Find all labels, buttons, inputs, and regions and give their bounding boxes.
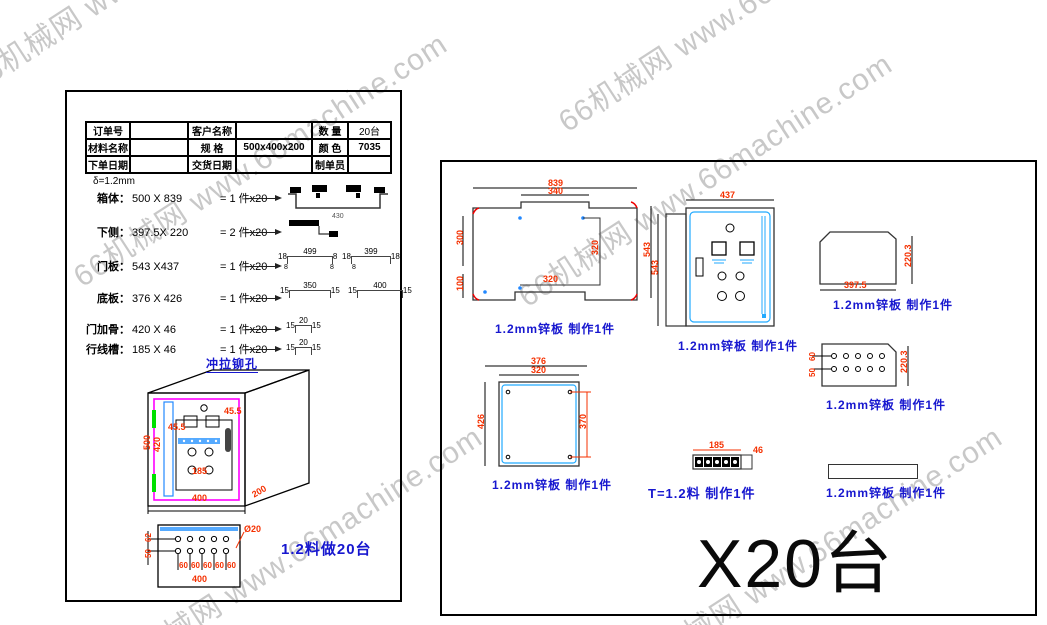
part-size: 543 X437 [132,261,220,273]
dim: 15 [348,287,357,295]
dim: 320 [531,365,546,375]
dim: 220.3 [899,350,909,373]
part-c-drawing: 397.5 220.3 [812,226,927,298]
dim: 50 [808,368,817,377]
dim: 543 [650,260,660,275]
spec-value: 500x400x200 [236,139,312,156]
dim: 15 [312,322,321,330]
dim: 46 [753,445,763,455]
arrow-icon [246,298,276,299]
part-a-label: 1.2mm锌板 制作1件 [495,320,615,337]
material-label: 材料名称 [86,139,130,156]
qty-value: 20台 [348,122,391,139]
dim: 60 [215,561,224,570]
dim: 8 [284,264,288,271]
arrow-icon [246,198,276,199]
qty-label: 数 量 [312,122,348,139]
total-quantity-text: X20台 [697,508,894,607]
dim: 185 [192,466,207,476]
dim: 200 [250,483,268,499]
order-no-value [130,122,188,139]
part-size: 420 X 46 [132,324,220,336]
dim: 400 [192,493,207,503]
dim: 320 [543,274,558,284]
dim: 185 [709,440,724,450]
part-e-label: 1.2mm锌板 制作1件 [492,476,612,493]
part-f-drawing: 185 46 [685,442,765,476]
dim: Ø20 [244,524,261,534]
dim: 370 [578,414,588,429]
clerk-label: 制单员 [312,156,348,173]
part-c-label: 1.2mm锌板 制作1件 [833,296,953,313]
dim: 18 [391,253,400,261]
dim: 15 [331,287,340,295]
customer-value [236,122,312,139]
dim: 60 [179,561,188,570]
door-bracket-sketch: 18 499 8 [278,253,337,264]
side-profile-sketch [285,216,355,244]
arrow-icon [246,266,276,267]
order-date-value [130,156,188,173]
dim: 60 [191,561,200,570]
dim: 60 [227,561,236,570]
parts-list-row: 底板：376 X 426= 1 件x20 [70,290,267,306]
part-name: 门加骨： [70,321,130,337]
part-d-label: 1.2mm锌板 制作1件 [826,396,946,413]
customer-label: 客户名称 [188,122,236,139]
order-date-label: 下单日期 [86,156,130,173]
dim: 543 [642,242,652,257]
spec-label: 规 格 [188,139,236,156]
dim: 8 [333,253,337,261]
base-bracket-sketch: 15 400 15 [348,287,412,298]
dim: 500 [142,435,152,450]
dim: 340 [548,186,563,196]
dim: 399 [364,247,377,256]
arrow-icon [246,349,276,350]
dim: 62 [144,533,153,542]
dim: 20 [299,316,308,325]
dim: 300 [455,230,465,245]
order-no-label: 订单号 [86,122,130,139]
dim: 426 [476,414,486,429]
order-info-table: 订单号 客户名称 数 量 20台 材料名称 规 格 500x400x200 颜 … [85,121,392,174]
dim: 437 [720,190,735,200]
material-value [130,139,188,156]
dim: 8 [330,264,334,271]
color-label: 颜 色 [312,139,348,156]
dim: 15 [312,344,321,352]
stiffener-bracket-sketch: 15 20 15 [286,322,321,333]
dim: 18 [342,253,351,261]
cabinet-drawing: 45.5 45.5 185 400 500 420 200 [140,362,330,514]
thickness-note: δ=1.2mm [93,176,135,187]
watermark: 66机械网 www.66machine.com [0,0,349,100]
dim: 499 [303,247,316,256]
duct-bracket-sketch: 15 20 15 [286,344,321,355]
part-a-drawing: 839 340 300 100 320 320 543 [455,178,655,323]
base-bracket-sketch: 15 350 15 [280,287,340,298]
part-b-drawing: 437 543 [652,196,782,336]
dim: 15 [403,287,412,295]
dim: 350 [303,281,316,290]
part-d-drawing: 60 50 220.3 [810,336,925,396]
dim: 60 [203,561,212,570]
dim: 320 [590,240,600,255]
part-b-label: 1.2mm锌板 制作1件 [678,337,798,354]
make-note: 1.2料做20台 [281,538,372,559]
part-e-drawing: 376 320 426 370 [475,358,600,473]
dim: 45.5 [224,406,242,416]
part-size: 376 X 426 [132,293,220,305]
part-g-drawing [828,464,918,479]
dim: 220.3 [903,244,913,267]
dim: 397.5 [844,280,867,290]
dim: 15 [280,287,289,295]
dim: 15 [286,344,295,352]
dim: 8 [352,264,356,271]
parts-list-row: 门板：543 X437= 1 件x20 [70,258,267,274]
part-name: 底板： [70,290,130,306]
dim: 15 [286,322,295,330]
part-size: 397.5X 220 [132,227,220,239]
dim: 45.5 [168,422,186,432]
dim: 400 [192,574,207,584]
dim: 20 [299,338,308,347]
part-name: 门板： [70,258,130,274]
part-g-label: 1.2mm锌板 制作1件 [826,484,946,501]
dim: 400 [373,281,386,290]
parts-list-row: 下侧：397.5X 220= 2 件x20 [70,224,267,240]
dim: 420 [152,437,162,452]
dim: 100 [455,276,465,291]
color-value: 7035 [348,139,391,156]
part-f-label: T=1.2料 制作1件 [648,483,755,502]
door-bracket-sketch: 18 399 18 [342,253,400,264]
arrow-icon [246,329,276,330]
arrow-icon [246,232,276,233]
dim: 18 [278,253,287,261]
dim: 50 [144,549,153,558]
drawing-sheet: 66机械网 www.66machine.com 66机械网 www.66mach… [0,0,1047,625]
parts-list-row: 门加骨：420 X 46= 1 件x20 [70,321,267,337]
delivery-date-label: 交货日期 [188,156,236,173]
part-name: 行线槽： [70,341,130,357]
dim: 60 [808,352,817,361]
part-name: 箱体： [70,190,130,206]
cabinet-note: 冲拉铆孔 [206,355,258,373]
delivery-date-value [236,156,312,173]
parts-list-row: 箱体：500 X 839= 1 件x20 [70,190,267,206]
part-size: 500 X 839 [132,193,220,205]
clerk-value [348,156,391,173]
part-name: 下侧： [70,224,130,240]
